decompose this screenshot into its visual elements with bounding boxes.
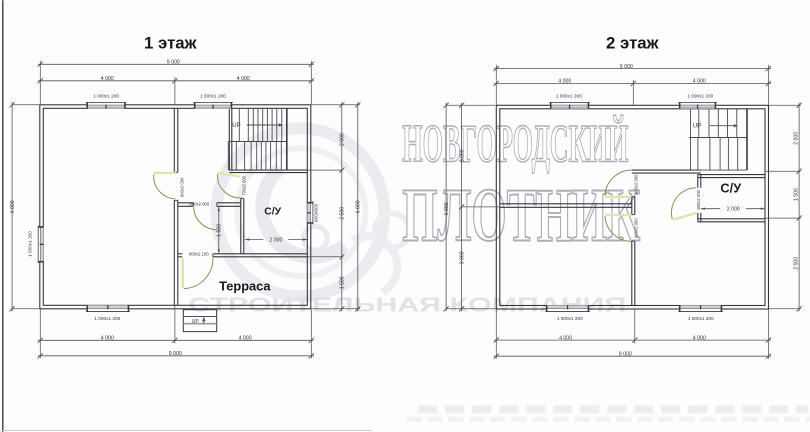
svg-text:2 000: 2 000	[269, 238, 282, 244]
svg-text:4 000: 4 000	[693, 335, 706, 341]
svg-text:9 000: 9 000	[167, 60, 180, 66]
svg-text:2 500: 2 500	[794, 257, 800, 270]
svg-text:1 500: 1 500	[794, 188, 800, 201]
svg-text:2 500: 2 500	[340, 207, 346, 220]
svg-text:1 000x1 200: 1 000x1 200	[93, 93, 119, 98]
svg-text:4 000: 4 000	[101, 336, 114, 342]
svg-text:1 000x1 200: 1 000x1 200	[94, 316, 120, 321]
svg-text:9 000: 9 000	[620, 64, 633, 70]
svg-text:ПЛОТНИК: ПЛОТНИК	[402, 173, 640, 257]
svg-text:4 000: 4 000	[237, 76, 250, 82]
svg-text:4 000: 4 000	[693, 79, 706, 85]
svg-text:600x600: 600x600	[314, 203, 319, 221]
svg-text:4 000: 4 000	[239, 336, 252, 342]
svg-text:UP: UP	[192, 319, 200, 325]
svg-text:UP: UP	[693, 124, 701, 130]
svg-text:1 этаж: 1 этаж	[144, 34, 198, 53]
svg-text:6 000: 6 000	[356, 200, 362, 213]
svg-text:1 000x1 200: 1 000x1 200	[557, 316, 583, 321]
svg-text:НОВГОРОДСКИЙ: НОВГОРОДСКИЙ	[402, 113, 628, 173]
svg-text:9 000: 9 000	[619, 352, 632, 358]
svg-text:900x2 000: 900x2 000	[180, 177, 185, 197]
svg-text:3 000: 3 000	[460, 149, 466, 162]
svg-text:1 000x1 200: 1 000x1 200	[200, 93, 226, 98]
svg-text:2 000: 2 000	[727, 207, 740, 213]
svg-text:4 000: 4 000	[559, 335, 572, 341]
svg-text:900x2 100: 900x2 100	[189, 252, 209, 257]
svg-text:900x2 000: 900x2 000	[633, 174, 638, 194]
svg-text:4 000: 4 000	[558, 79, 571, 85]
svg-text:4 000: 4 000	[101, 76, 114, 82]
svg-text:9 000: 9 000	[169, 351, 182, 357]
svg-text:С/У: С/У	[264, 207, 281, 218]
svg-text:UP: UP	[232, 123, 240, 129]
svg-text:1 000x1 200: 1 000x1 200	[28, 231, 33, 257]
svg-text:1 500: 1 500	[217, 224, 223, 237]
svg-text:6 000: 6 000	[444, 202, 450, 215]
svg-text:2 этаж: 2 этаж	[606, 34, 660, 53]
svg-text:700x2 000: 700x2 000	[242, 175, 247, 195]
svg-text:1 000x1 200: 1 000x1 200	[556, 93, 582, 98]
svg-text:2 000: 2 000	[794, 132, 800, 145]
svg-text:2 000: 2 000	[340, 133, 346, 146]
svg-text:3 000: 3 000	[460, 251, 466, 264]
svg-text:1 000x1 200: 1 000x1 200	[687, 93, 713, 98]
svg-text:800x2 000: 800x2 000	[190, 202, 210, 207]
svg-text:6 000: 6 000	[10, 200, 16, 213]
svg-text:900x2 000: 900x2 000	[633, 218, 638, 238]
svg-text:1 000x1 200: 1 000x1 200	[688, 316, 714, 321]
svg-text:С/У: С/У	[720, 180, 742, 195]
svg-text:Терраса: Терраса	[219, 278, 271, 293]
svg-text:800x2 000: 800x2 000	[696, 189, 701, 209]
svg-text:1 500: 1 500	[340, 276, 346, 289]
